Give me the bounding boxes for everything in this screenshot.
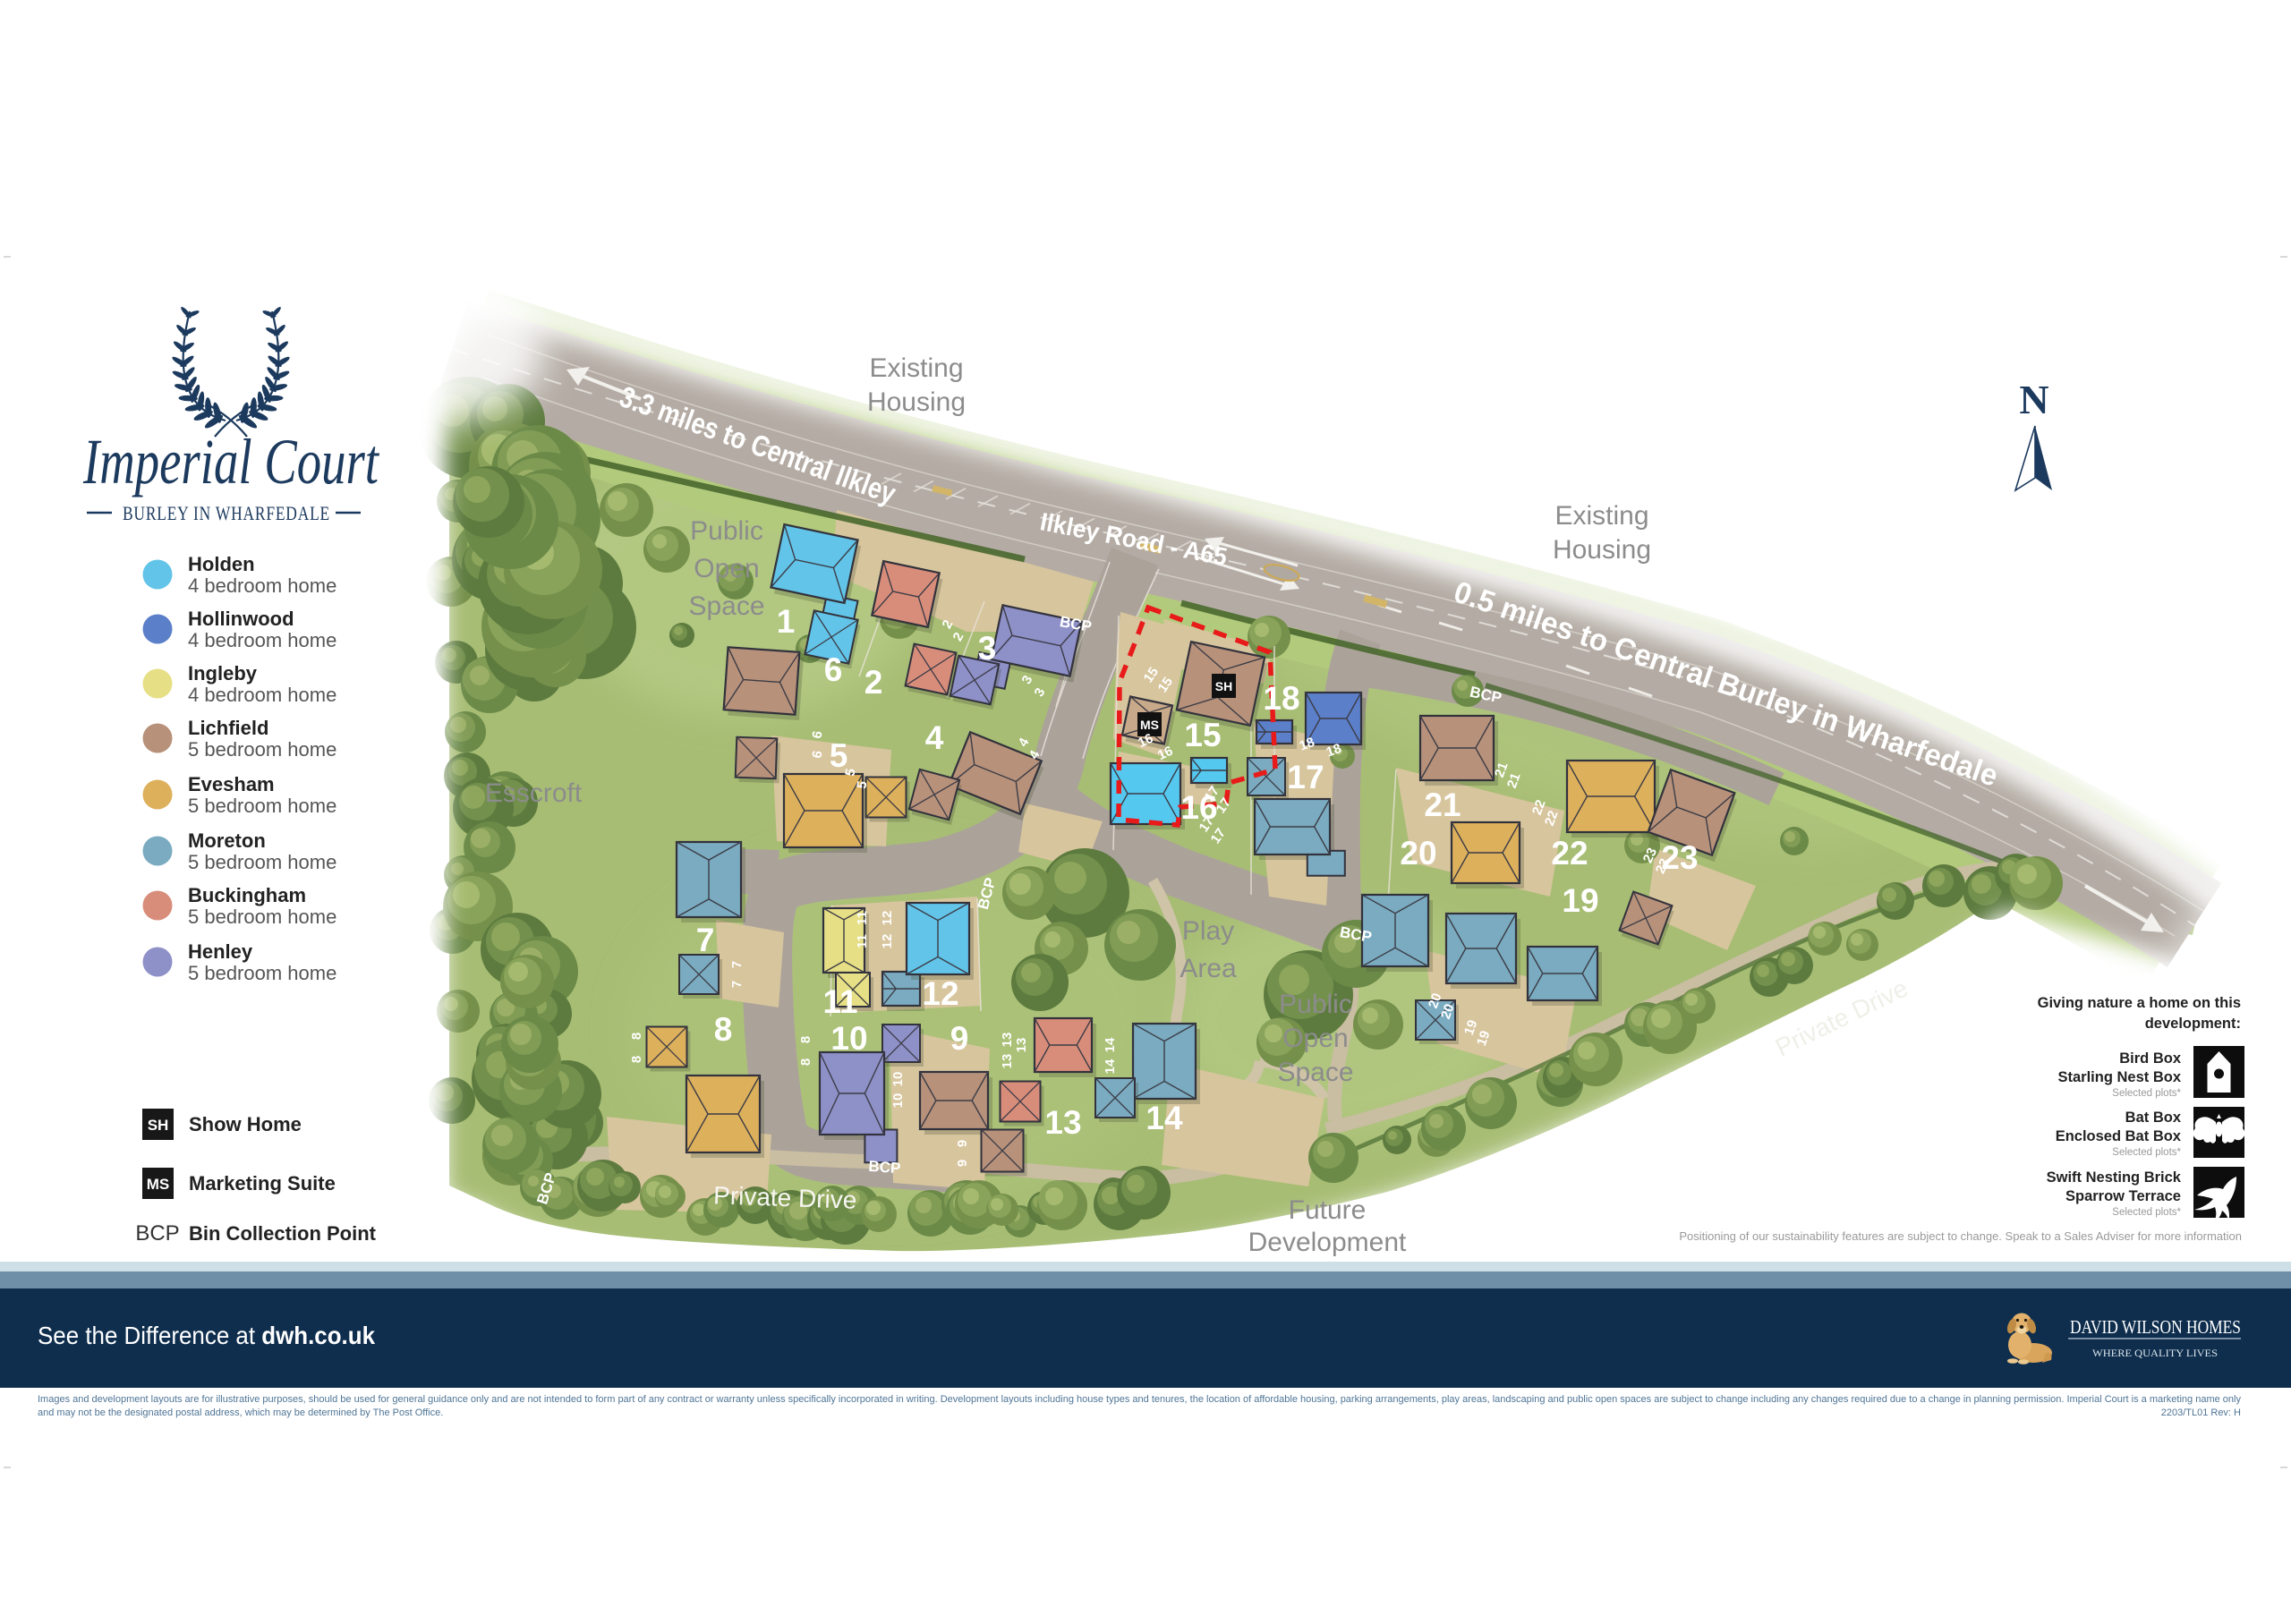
svg-text:3: 3: [978, 630, 997, 667]
svg-text:8: 8: [714, 1011, 733, 1048]
svg-text:5 bedroom home: 5 bedroom home: [188, 795, 336, 817]
svg-text:9: 9: [955, 1160, 970, 1167]
svg-text:Selected plots*: Selected plots*: [2112, 1147, 2181, 1158]
svg-text:Buckingham: Buckingham: [188, 884, 306, 906]
svg-text:Enclosed Bat Box: Enclosed Bat Box: [2056, 1128, 2182, 1144]
svg-text:4: 4: [925, 719, 944, 756]
svg-text:10: 10: [830, 1020, 867, 1057]
svg-text:Imperial Court: Imperial Court: [82, 426, 379, 497]
svg-text:19: 19: [1562, 882, 1598, 919]
svg-text:13: 13: [1000, 1033, 1015, 1048]
svg-text:Esscroft: Esscroft: [485, 778, 583, 808]
svg-text:Public: Public: [690, 516, 763, 546]
svg-text:WHERE QUALITY LIVES: WHERE QUALITY LIVES: [2092, 1348, 2218, 1359]
svg-text:Henley: Henley: [188, 940, 253, 963]
svg-text:Lichfield: Lichfield: [188, 717, 268, 739]
svg-text:See the Difference at dwh.co.u: See the Difference at dwh.co.uk: [38, 1322, 375, 1349]
svg-text:Space: Space: [688, 591, 764, 621]
svg-text:4 bedroom home: 4 bedroom home: [188, 684, 336, 706]
svg-text:5 bedroom home: 5 bedroom home: [188, 906, 336, 928]
svg-text:8: 8: [629, 1033, 644, 1040]
svg-text:13: 13: [1044, 1104, 1081, 1141]
svg-text:8: 8: [629, 1056, 644, 1063]
svg-text:7: 7: [696, 922, 715, 958]
svg-text:12: 12: [922, 975, 958, 1012]
svg-text:Development: Development: [1248, 1228, 1407, 1257]
svg-text:Starling Nest Box: Starling Nest Box: [2057, 1069, 2181, 1085]
svg-text:DAVID WILSON HOMES: DAVID WILSON HOMES: [2070, 1316, 2241, 1338]
svg-text:14: 14: [1103, 1059, 1118, 1074]
svg-text:Swift Nesting Brick: Swift Nesting Brick: [2047, 1169, 2182, 1186]
svg-text:Marketing Suite: Marketing Suite: [189, 1172, 336, 1195]
svg-text:Hollinwood: Hollinwood: [188, 608, 294, 630]
svg-text:13: 13: [1014, 1038, 1029, 1053]
svg-text:Ingleby: Ingleby: [188, 662, 258, 684]
svg-text:7: 7: [729, 981, 745, 988]
svg-text:2203/TL01 Rev: H: 2203/TL01 Rev: H: [2161, 1407, 2241, 1418]
svg-text:17: 17: [1287, 759, 1324, 795]
svg-text:4 bedroom home: 4 bedroom home: [188, 629, 336, 651]
svg-text:22: 22: [1551, 835, 1588, 872]
svg-text:18: 18: [1263, 680, 1299, 717]
svg-text:BCP: BCP: [135, 1221, 179, 1246]
svg-text:6: 6: [824, 651, 843, 688]
svg-text:14: 14: [1145, 1100, 1183, 1136]
svg-text:SH: SH: [1215, 679, 1232, 693]
svg-text:N: N: [2019, 377, 2048, 422]
svg-text:Existing: Existing: [1554, 501, 1648, 531]
svg-text:10: 10: [890, 1072, 906, 1087]
svg-text:5 bedroom home: 5 bedroom home: [188, 738, 336, 761]
svg-text:10: 10: [890, 1093, 906, 1109]
svg-text:1: 1: [777, 603, 796, 640]
svg-text:14: 14: [1103, 1037, 1118, 1052]
svg-text:Public: Public: [1279, 990, 1352, 1019]
svg-text:Images and development layouts: Images and development layouts are for i…: [38, 1394, 2241, 1405]
svg-text:Positioning of our sustainabil: Positioning of our sustainability featur…: [1679, 1229, 2242, 1243]
svg-text:Existing: Existing: [869, 353, 963, 383]
svg-text:Housing: Housing: [1553, 535, 1651, 565]
svg-text:Future: Future: [1289, 1195, 1367, 1225]
svg-text:Holden: Holden: [188, 553, 255, 575]
svg-text:and may not be the designated: and may not be the designated postal add…: [38, 1407, 443, 1418]
svg-text:MS: MS: [1140, 718, 1159, 732]
svg-text:Show Home: Show Home: [189, 1113, 302, 1135]
svg-text:9: 9: [950, 1020, 969, 1057]
svg-text:Moreton: Moreton: [188, 829, 266, 852]
svg-text:15: 15: [1184, 717, 1221, 753]
svg-text:13: 13: [1000, 1054, 1015, 1069]
svg-text:5 bedroom home: 5 bedroom home: [188, 851, 336, 873]
svg-text:2: 2: [864, 664, 883, 701]
svg-text:11: 11: [855, 934, 870, 948]
svg-text:Open: Open: [694, 554, 759, 583]
svg-text:11: 11: [855, 911, 870, 925]
svg-text:development:: development:: [2145, 1016, 2241, 1032]
svg-text:12: 12: [880, 911, 895, 926]
svg-text:Selected plots*: Selected plots*: [2112, 1207, 2181, 1218]
svg-text:Giving nature a home on this: Giving nature a home on this: [2038, 995, 2241, 1011]
svg-text:Private Drive: Private Drive: [713, 1181, 857, 1214]
svg-text:8: 8: [798, 1059, 813, 1066]
svg-text:Space: Space: [1277, 1058, 1353, 1087]
svg-text:Bird Box: Bird Box: [2119, 1050, 2182, 1067]
svg-text:Selected plots*: Selected plots*: [2112, 1088, 2181, 1099]
svg-text:4 bedroom home: 4 bedroom home: [188, 574, 336, 597]
svg-text:Evesham: Evesham: [188, 773, 275, 795]
svg-text:20: 20: [1400, 835, 1436, 872]
svg-text:Open: Open: [1282, 1024, 1348, 1053]
svg-text:Bat Box: Bat Box: [2125, 1110, 2182, 1126]
svg-text:Area: Area: [1180, 954, 1237, 983]
svg-text:21: 21: [1424, 786, 1461, 823]
svg-text:5 bedroom home: 5 bedroom home: [188, 962, 336, 984]
svg-text:MS: MS: [147, 1176, 170, 1193]
svg-text:BURLEY IN WHARFEDALE: BURLEY IN WHARFEDALE: [123, 502, 330, 524]
svg-text:9: 9: [955, 1140, 970, 1147]
svg-text:Play: Play: [1182, 916, 1234, 946]
svg-text:Sparrow Terrace: Sparrow Terrace: [2065, 1188, 2181, 1204]
svg-text:7: 7: [729, 961, 745, 968]
svg-text:BCP: BCP: [868, 1158, 901, 1177]
svg-text:SH: SH: [148, 1117, 169, 1134]
svg-text:Housing: Housing: [867, 387, 966, 417]
svg-text:12: 12: [880, 934, 895, 949]
svg-text:Bin Collection Point: Bin Collection Point: [189, 1222, 377, 1245]
svg-text:11: 11: [822, 983, 857, 1020]
svg-text:8: 8: [798, 1036, 813, 1043]
